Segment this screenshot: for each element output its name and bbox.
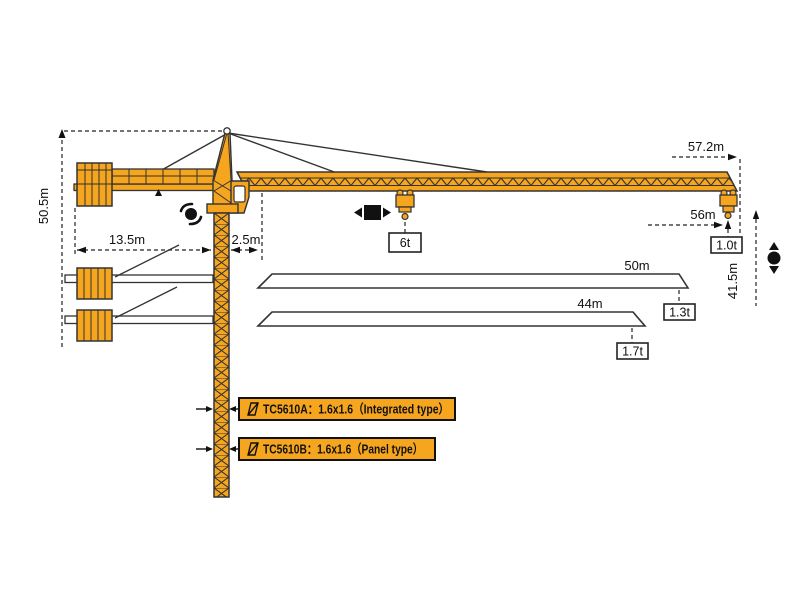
load-tip-50: 1.3t [669,306,690,320]
dim-hook-height: 41.5m [725,263,740,299]
mast-lattice [214,213,229,497]
model-label-a: TC5610A：1.6x1.6（Integrated type） [239,398,455,420]
load-tip-56: 1.0t [716,239,737,253]
mid-trolley [396,190,414,220]
counter-jib [74,163,214,206]
model-b-label: TC5610B：1.6x1.6（Panel type） [263,442,423,457]
cab-window [234,186,245,202]
hoist-up-down-icon [768,242,781,274]
main-jib [237,172,737,191]
load-boxes: 6t 1.0t 1.3t 1.7t [389,233,742,359]
apex-pin [224,128,230,134]
tower-mast [214,213,229,497]
tip-hook [725,213,731,219]
dim-jib-50: 50m [624,258,649,273]
dim-counter-jib: 13.5m [109,232,145,247]
mid-hook [402,214,408,220]
model-a-label: TC5610A：1.6x1.6（Integrated type） [263,402,449,417]
jib-option-44m [258,312,645,326]
counterweight-option-2 [65,310,213,341]
dim-total-height: 50.5m [36,188,51,224]
slew-rotation-icon [181,204,201,224]
crane-diagram: TC5610A：1.6x1.6（Integrated type） TC5610B… [0,0,800,600]
load-tip-44: 1.7t [622,345,643,359]
load-mid: 6t [400,236,411,250]
dim-hook-radius: 56m [690,207,715,222]
dim-rear-offset: 2.5m [232,232,261,247]
crane-diagram-svg: TC5610A：1.6x1.6（Integrated type） TC5610B… [0,0,800,600]
model-label-b: TC5610B：1.6x1.6（Panel type） [239,438,435,460]
dim-jib-44: 44m [577,296,602,311]
dim-max-radius: 57.2m [688,139,724,154]
tie-rods [160,133,487,173]
jib-option-50m [258,274,688,288]
jib-lattice [243,178,731,186]
slewing-unit [207,204,238,213]
counterweight-block [77,163,112,206]
tip-trolley [720,190,737,219]
counterweight-option-1 [65,268,213,299]
trolley-travel-icon [354,205,391,220]
